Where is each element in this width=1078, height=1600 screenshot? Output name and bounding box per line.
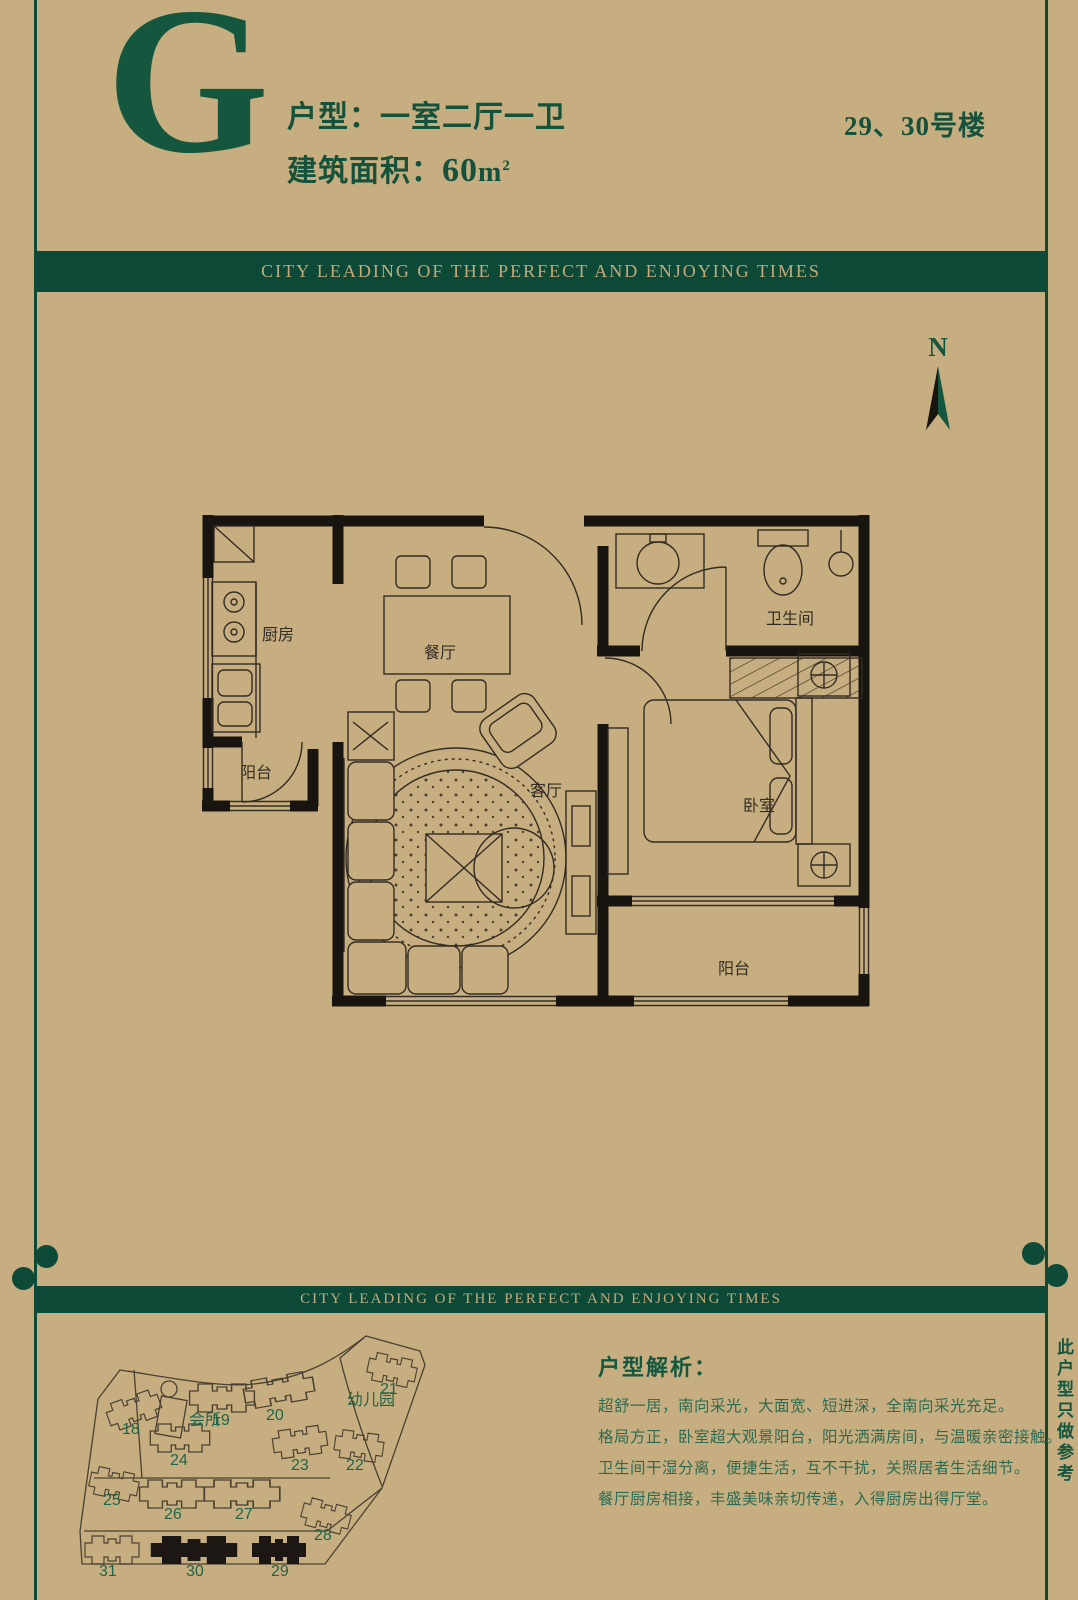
analysis-line: 卫生间干湿分离，便捷生活，互不干扰，关照居者生活细节。 [598,1460,1028,1477]
room-label-bathroom: 卫生间 [766,610,814,628]
building-label-23: 23 [291,1457,309,1474]
analysis-line: 超舒一居，南向采光，大面宽、短进深，全南向采光充足。 [598,1398,1028,1415]
left-border-line [34,0,37,1600]
building-label-31: 31 [99,1563,117,1580]
analysis-line: 餐厅厨房相接，丰盛美味亲切传递，入得厨房出得厅堂。 [598,1491,1028,1508]
right-border-line [1045,0,1048,1600]
area-value: 60 [442,152,478,189]
dining-furniture [384,556,510,712]
room-label-bedroom: 卧室 [743,797,775,815]
building-label-26: 26 [164,1506,182,1523]
analysis-title: 户型解析： [598,1350,1028,1382]
building-label-20: 20 [266,1407,284,1424]
headline: 户型：一室二厅一卫 建筑面积：60m2 [287,92,566,190]
analysis-lines: 超舒一居，南向采光，大面宽、短进深，全南向采光充足。格局方正，卧室超大观景阳台，… [598,1398,1028,1508]
room-labels: 厨房餐厅卫生间卧室阳台阳台客厅 [240,610,814,978]
area-unit: m [478,157,502,188]
building-number: 29、30号楼 [790,104,1040,143]
side-note-vertical: 此户型只做参考 [1051,1338,1076,1508]
unit-type-letter: G [106,0,269,186]
building-shape-30 [151,1536,237,1564]
building-label-22: 22 [346,1457,364,1474]
room-label-balcony-west: 阳台 [240,764,272,782]
building-shape-26 [140,1480,205,1508]
building-label-25: 25 [103,1492,121,1509]
north-label: N [918,332,958,363]
room-label-living: 客厅 [530,782,562,800]
building-shape-31 [85,1536,139,1564]
room-label-dining: 餐厅 [424,644,456,662]
building-shape-20 [242,1370,316,1410]
room-label-kitchen: 厨房 [262,626,294,644]
kitchen-furniture [212,526,260,738]
bedroom-furniture [608,654,862,886]
corner-dot [35,1245,58,1268]
area-label: 建筑面积： [287,155,442,188]
building-label-29: 29 [271,1563,289,1580]
poster-page: G 户型：一室二厅一卫 建筑面积：60m2 29、30号楼 CITY LEADI… [0,0,1078,1600]
banner-top: CITY LEADING OF THE PERFECT AND ENJOYING… [37,251,1045,292]
area-line: 建筑面积：60m2 [287,146,566,190]
corner-dot [12,1267,35,1290]
building-label-30: 30 [186,1563,204,1580]
north-arrow-icon [918,364,958,436]
walls [202,515,869,1006]
building-shape-23 [271,1424,328,1459]
area-label: 幼儿园 [347,1391,395,1409]
building-label-18: 18 [122,1421,140,1438]
corner-dot [1045,1264,1068,1287]
analysis-section: 户型解析： 超舒一居，南向采光，大面宽、短进深，全南向采光充足。格局方正，卧室超… [598,1350,1028,1522]
living-furniture [344,689,596,994]
site-map: 1819202122232425262728313029会所幼儿园 [72,1326,472,1600]
area-sup: 2 [502,158,511,174]
corner-dot [1022,1242,1045,1265]
site-boundary [80,1336,425,1564]
floorplan-drawing: 厨房餐厅卫生间卧室阳台阳台客厅 [198,506,874,1011]
building-label-24: 24 [170,1452,188,1469]
building-label-28: 28 [314,1527,332,1544]
analysis-line: 格局方正，卧室超大观景阳台，阳光洒满房间，与温暖亲密接触。 [598,1429,1028,1446]
building-shape-29 [252,1536,306,1564]
room-label-balcony-south: 阳台 [718,960,750,978]
building-label-27: 27 [235,1506,253,1523]
building-shape-27 [204,1480,280,1508]
area-label: 会所 [189,1411,221,1429]
banner-bottom: CITY LEADING OF THE PERFECT AND ENJOYING… [37,1286,1045,1313]
unit-type-label: 户型：一室二厅一卫 [287,92,566,136]
bathroom-fixtures [616,530,853,595]
